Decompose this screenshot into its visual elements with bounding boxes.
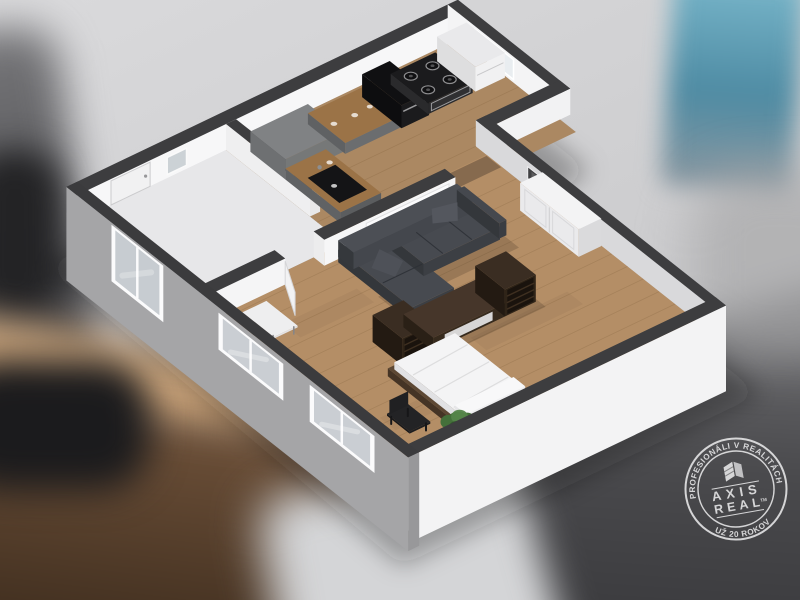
axis-real-building-icon (723, 460, 744, 481)
door-handle (144, 175, 147, 178)
apartment-render (46, 0, 761, 566)
faucet (317, 165, 321, 169)
screenshot-root: PROFESIONÁLI V REALITÁCH UŽ 20 ROKOV AXI… (0, 0, 800, 600)
axis-real-watermark: PROFESIONÁLI V REALITÁCH UŽ 20 ROKOV AXI… (677, 430, 794, 547)
brand-trademark: TM (760, 497, 768, 503)
balcony-door-sheen (122, 272, 151, 275)
floor-plan-3d: PROFESIONÁLI V REALITÁCH UŽ 20 ROKOV AXI… (0, 0, 800, 600)
